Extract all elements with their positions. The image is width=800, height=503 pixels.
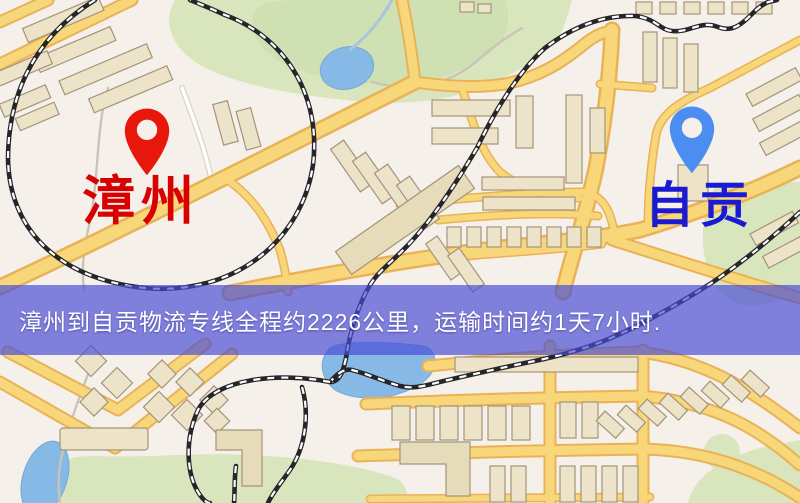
map-container: 漳州 自贡 漳州到自贡物流专线全程约2226公里，运输时间约1天7小时. [0, 0, 800, 503]
destination-marker-pin-icon [664, 101, 720, 175]
origin-marker-pin-icon [119, 103, 175, 177]
map-image [0, 0, 800, 503]
origin-city-label: 漳州 [82, 176, 200, 229]
route-info-text: 漳州到自贡物流专线全程约2226公里，运输时间约1天7小时. [0, 303, 661, 337]
destination-marker-shape [670, 107, 714, 174]
route-info-banner: 漳州到自贡物流专线全程约2226公里，运输时间约1天7小时. [0, 285, 800, 355]
origin-marker-shape [125, 109, 169, 176]
destination-city-label: 自贡 [645, 181, 755, 230]
